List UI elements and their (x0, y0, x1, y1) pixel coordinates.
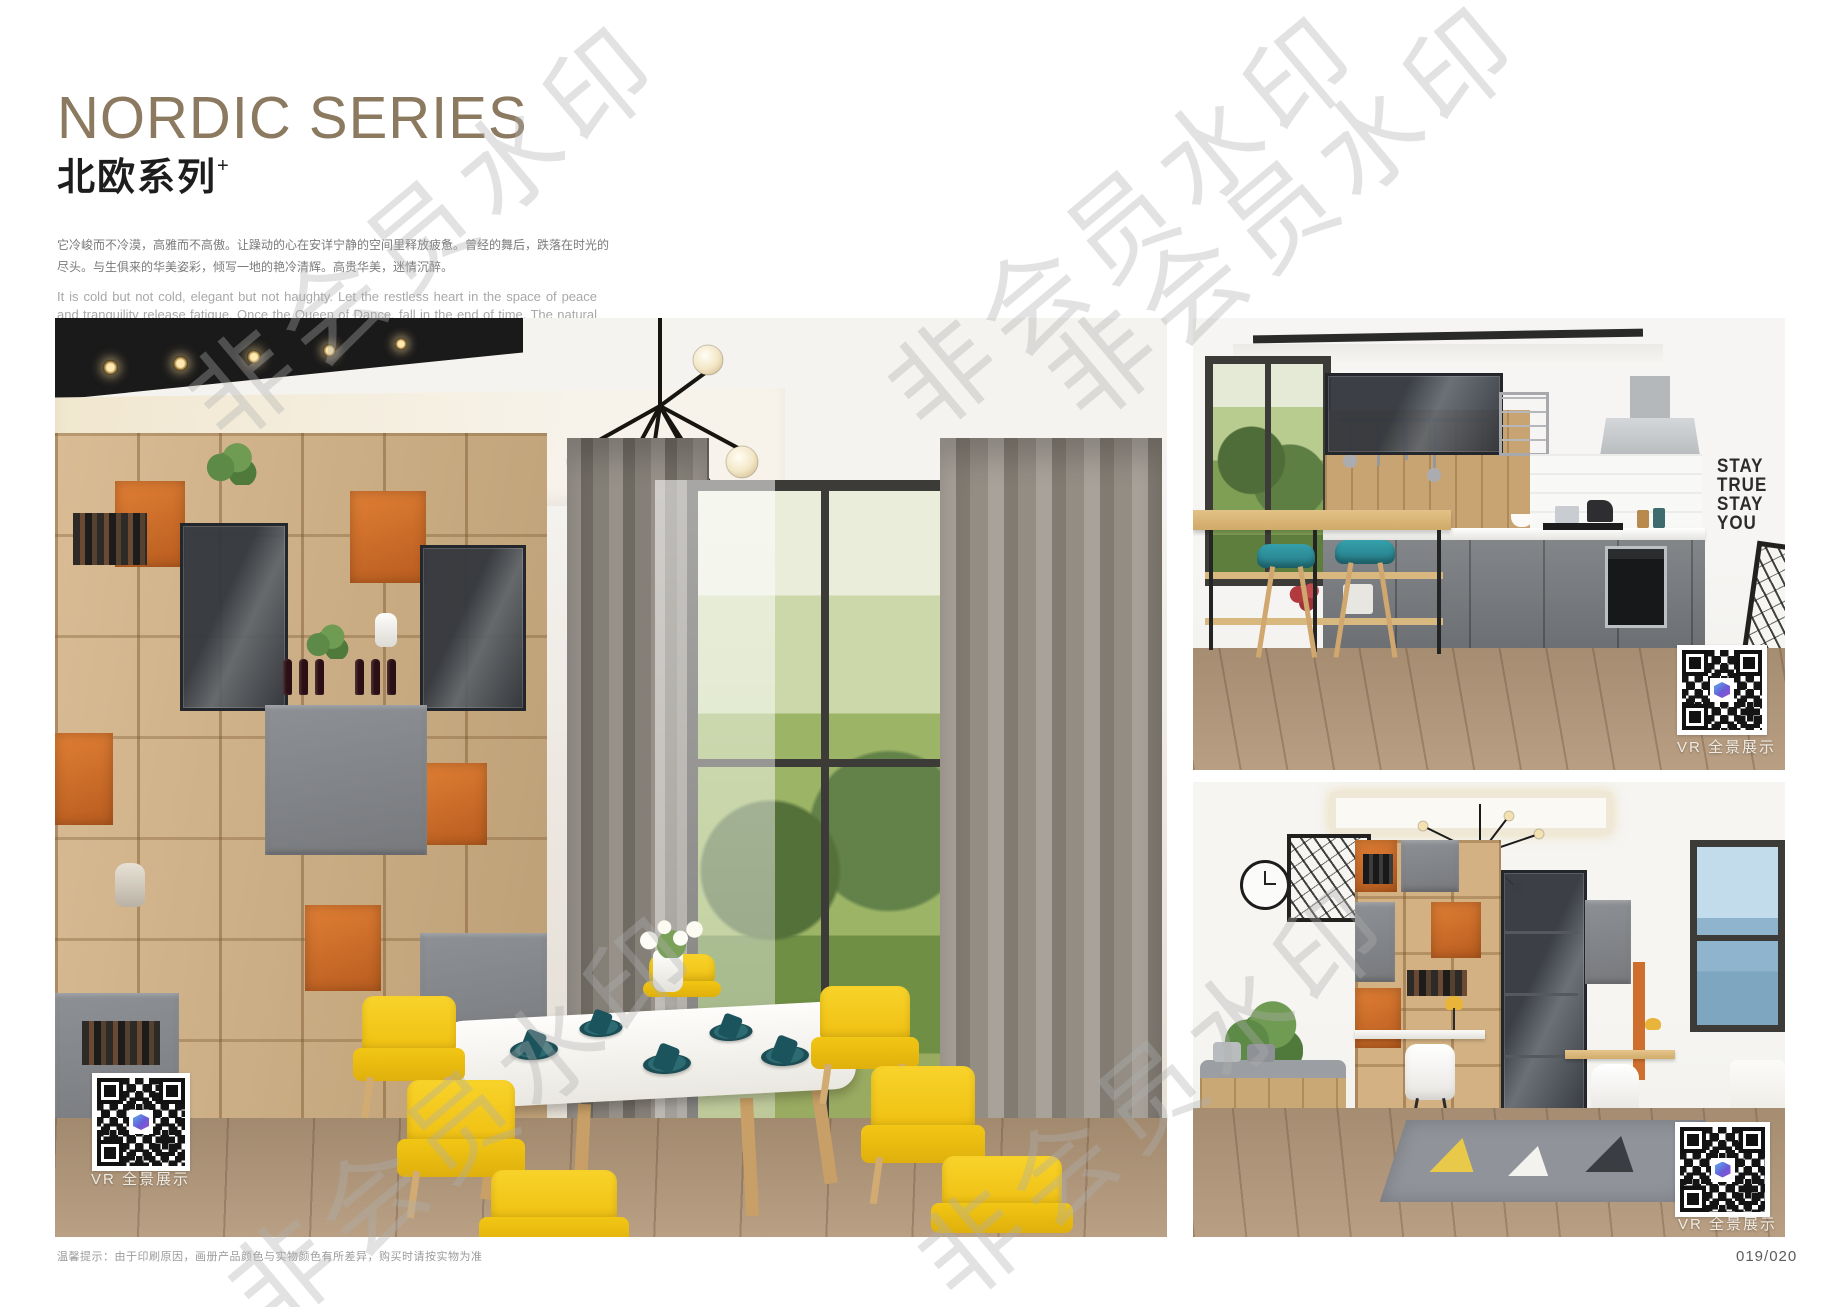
qr-eye (97, 1078, 123, 1104)
rug-triangle (1508, 1146, 1558, 1176)
chair-seat (931, 1203, 1073, 1233)
shelf-tile-grey (1401, 840, 1459, 892)
book-row (1363, 854, 1393, 884)
ladle-head (1343, 454, 1357, 468)
qr-code (1677, 645, 1767, 735)
page-title: NORDIC SERIES (57, 84, 528, 152)
qr-logo-icon (1710, 678, 1734, 702)
shelf-tile-orange (1431, 902, 1481, 958)
spotlight (323, 344, 336, 357)
window-mullion (1697, 935, 1778, 941)
range-hood (1600, 418, 1700, 456)
cooking-pot (1555, 506, 1579, 523)
chair-back (407, 1080, 515, 1143)
qr-pattern (1682, 650, 1762, 730)
spotlight (247, 350, 261, 364)
chair-seat (479, 1217, 629, 1237)
chair-leg (819, 1064, 832, 1105)
qr-pattern (97, 1078, 185, 1166)
qr-eye (1680, 1127, 1706, 1153)
grey-cabinet-doors (265, 705, 427, 855)
bench-pillow (1247, 1044, 1275, 1062)
qr-eye (1739, 1127, 1765, 1153)
ceiling-track (55, 318, 523, 400)
qr-eye (97, 1140, 123, 1166)
spotlight (395, 338, 407, 350)
spice-rack (1499, 392, 1549, 456)
book-row (1407, 970, 1467, 996)
photo-kitchen: STAY TRUE STAY YOU (1193, 318, 1785, 770)
qr-logo-icon (1711, 1158, 1735, 1182)
glass-display-cabinet (420, 545, 526, 711)
chair-back (491, 1170, 617, 1221)
curtain-right (940, 438, 1162, 1154)
catalog-page: NORDIC SERIES 北欧系列+ 它冷峻而不冷漠，高雅而不高傲。让躁动的心… (0, 0, 1836, 1307)
dining-chair (931, 1156, 1073, 1237)
chair-leg (407, 1171, 420, 1218)
desk-lamp (1645, 1018, 1661, 1030)
book-row (73, 513, 147, 565)
qr-pattern (1680, 1127, 1765, 1212)
counter-jar (1637, 510, 1649, 528)
wall-word: YOU (1717, 512, 1781, 534)
qr-logo-icon (129, 1110, 153, 1134)
chair-back (820, 986, 911, 1040)
desk-top (1565, 1050, 1675, 1059)
rug-triangle (1585, 1136, 1645, 1172)
built-in-oven (1605, 546, 1667, 628)
window (1690, 840, 1785, 1032)
decor-vase (375, 613, 397, 647)
decor-urn (115, 863, 145, 907)
chair-back (362, 996, 456, 1052)
dining-chair (479, 1170, 629, 1237)
flower-bouquet (635, 914, 705, 958)
qr-eye (1736, 650, 1762, 676)
series-title-plus: + (217, 155, 231, 177)
spotlight (173, 356, 188, 371)
vr-label: VR 全景展示 (1678, 1213, 1777, 1234)
rug-triangle (1429, 1138, 1484, 1172)
bar-shelf (1205, 618, 1443, 625)
chair-back (942, 1156, 1061, 1207)
counter-jar (1653, 508, 1665, 528)
ladle-head (1427, 468, 1441, 482)
wall-lettering: STAY TRUE STAY YOU (1717, 456, 1781, 540)
bar-shelf (1205, 572, 1443, 579)
series-title-zh-text: 北欧系列 (57, 157, 217, 199)
desk-top (1355, 1030, 1485, 1039)
qr-eye (1682, 650, 1708, 676)
shelf-tile-orange (1355, 988, 1401, 1048)
wall-cabinet (1585, 900, 1631, 984)
glass-shelf (1504, 993, 1578, 996)
desk-chair (1405, 1044, 1455, 1100)
area-rug (1380, 1120, 1707, 1202)
orange-side-panel (1633, 962, 1645, 1080)
spotlight (103, 360, 118, 375)
bench-cushion (1200, 1060, 1346, 1080)
desk-lamp-arm (1453, 1008, 1455, 1030)
series-description-zh: 它冷峻而不冷漠，高雅而不高傲。让躁动的心在安详宁静的空间里释放疲惫。曾经的舞后，… (57, 234, 609, 278)
photo-dining-room: VR 全景展示 (55, 318, 1167, 1237)
qr-eye (159, 1078, 185, 1104)
chair-leg (870, 1157, 883, 1204)
wine-bottle (355, 659, 364, 695)
shelf-tile-orange (305, 905, 381, 991)
shelf-tile-orange (350, 491, 426, 583)
shelf-plant (205, 441, 257, 485)
wine-bottle (283, 659, 292, 695)
bar-stool-seat (1335, 540, 1395, 564)
shelf-plant (305, 623, 349, 659)
bar-leg (1437, 530, 1441, 654)
cooktop (1543, 523, 1623, 530)
glass-display-cabinet (180, 523, 288, 711)
shelf-tile-grey (1355, 902, 1395, 982)
wine-bottle (299, 659, 308, 695)
clock-hand (1264, 883, 1276, 885)
wine-bottle (315, 659, 324, 695)
wine-bottle (387, 659, 396, 695)
wall-clock (1240, 860, 1290, 910)
vr-label: VR 全景展示 (91, 1168, 190, 1189)
book-row (82, 1021, 160, 1065)
photo-study: VR 全景展示 (1193, 782, 1785, 1237)
kettle (1587, 500, 1613, 522)
footer-note: 温馨提示：由于印刷原因，画册产品颜色与实物颜色有所差异，购买时请按实物为准 (57, 1248, 483, 1264)
qr-code (1675, 1122, 1770, 1217)
series-title-zh: 北欧系列+ (57, 146, 231, 201)
glass-display-case (1501, 870, 1587, 1118)
ceiling-beam (1253, 329, 1643, 344)
bar-leg (1209, 530, 1213, 650)
bar-counter (1193, 510, 1451, 530)
qr-eye (1682, 704, 1708, 730)
bar-stool-seat (1257, 544, 1315, 568)
chair-back (871, 1066, 975, 1129)
shelf-tile-orange (55, 733, 113, 825)
qr-eye (1680, 1186, 1706, 1212)
chair-leg (361, 1076, 374, 1118)
bench-pillow (1213, 1042, 1241, 1062)
page-number: 019/020 (1736, 1248, 1797, 1265)
vr-label: VR 全景展示 (1677, 736, 1776, 757)
glass-shelf (1504, 931, 1578, 934)
qr-code (92, 1073, 190, 1171)
wine-bottle (371, 659, 380, 695)
hood-duct (1630, 376, 1670, 420)
upper-glass-cabinet (1325, 373, 1503, 455)
